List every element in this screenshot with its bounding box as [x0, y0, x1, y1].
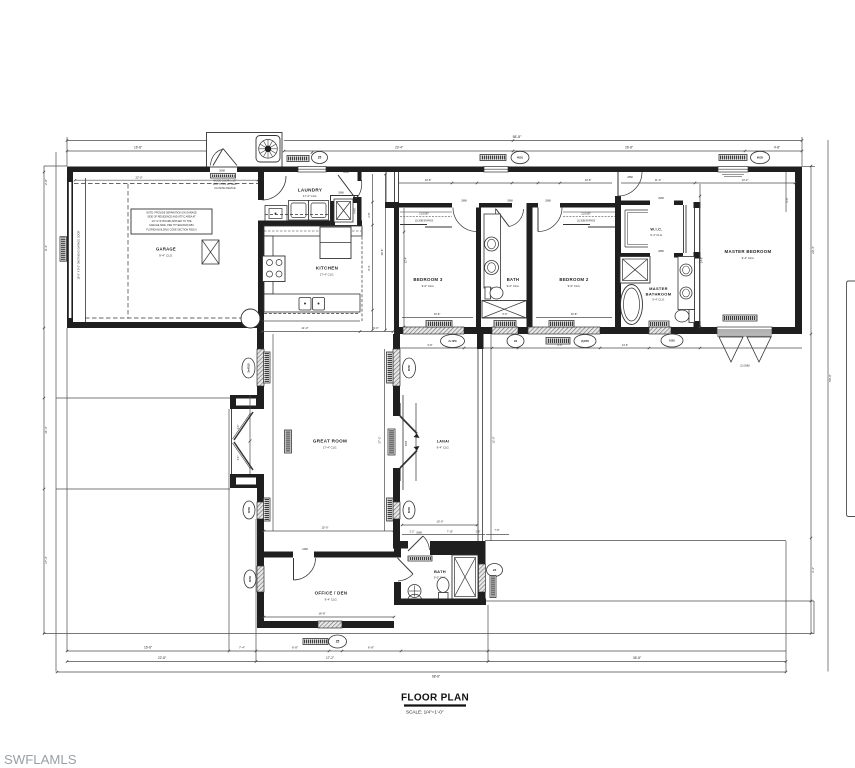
svg-text:CLOSET: CLOSET	[419, 213, 429, 216]
svg-text:36'-8": 36'-8"	[633, 656, 641, 660]
svg-text:3068: 3068	[219, 169, 225, 173]
svg-text:10'-8": 10'-8"	[585, 178, 592, 182]
svg-text:15'-0": 15'-0"	[321, 526, 328, 530]
svg-text:9'-8": 9'-8"	[558, 344, 563, 347]
svg-text:58'-8": 58'-8"	[513, 135, 522, 139]
svg-text:2'-8": 2'-8"	[44, 179, 48, 185]
svg-text:17'-2": 17'-2"	[326, 656, 334, 660]
svg-text:11'-0": 11'-0"	[655, 178, 661, 182]
svg-text:9'-8": 9'-8"	[785, 197, 789, 202]
svg-text:9'-4" CLG.: 9'-4" CLG.	[742, 256, 755, 260]
svg-text:8'-4": 8'-4"	[367, 265, 371, 270]
svg-text:(2) 2068 BYPASS: (2) 2068 BYPASS	[415, 220, 434, 223]
svg-text:BEDROOM 2: BEDROOM 2	[559, 277, 589, 282]
svg-text:16'-8": 16'-8"	[144, 646, 152, 650]
svg-text:12'-4": 12'-4"	[405, 257, 408, 263]
svg-text:9'-0" CLG.: 9'-0" CLG.	[568, 284, 581, 288]
svg-text:2068: 2068	[658, 197, 664, 200]
svg-text:13'-6": 13'-6"	[622, 344, 628, 347]
svg-text:LANAI: LANAI	[437, 440, 450, 444]
svg-text:FLOOR PLAN: FLOOR PLAN	[401, 693, 469, 704]
svg-text:16'-8": 16'-8"	[318, 612, 325, 616]
svg-text:1/2" GYP. BOARD APPLIED TO TH: 1/2" GYP. BOARD APPLIED TO THE	[151, 220, 191, 223]
svg-text:17'-4" CLG.: 17'-4" CLG.	[323, 446, 338, 450]
svg-text:16'-8": 16'-8"	[134, 146, 142, 150]
svg-text:2868: 2868	[658, 250, 664, 253]
svg-text:SCALE: 1/4"=1'-0": SCALE: 1/4"=1'-0"	[406, 710, 444, 715]
svg-text:22'-0": 22'-0"	[135, 176, 142, 180]
svg-text:26'-8": 26'-8"	[625, 146, 633, 150]
svg-text:2868: 2868	[545, 200, 551, 203]
svg-text:2668: 2668	[416, 532, 422, 535]
svg-text:GARAGE SIDE, PER 7TH ED(2020): GARAGE SIDE, PER 7TH ED(2020) FBC	[149, 224, 194, 227]
svg-text:2868: 2868	[627, 176, 633, 179]
svg-text:6050: 6050	[407, 506, 411, 513]
svg-text:11'-4": 11'-4"	[44, 426, 48, 433]
svg-text:BATH: BATH	[507, 277, 520, 282]
svg-text:2'-2": 2'-2"	[410, 531, 415, 534]
svg-text:CLOSET: CLOSET	[581, 213, 591, 216]
svg-text:7'-8": 7'-8"	[495, 529, 500, 532]
svg-text:GARAGE: GARAGE	[156, 247, 176, 252]
svg-text:6055: 6055	[757, 156, 764, 160]
svg-text:23: 23	[514, 339, 518, 343]
svg-text:BATHROOM: BATHROOM	[646, 291, 672, 296]
svg-text:AHU: AHU	[353, 208, 357, 214]
svg-text:14'-8": 14'-8"	[701, 257, 704, 263]
svg-text:10'-8": 10'-8"	[434, 312, 441, 316]
svg-text:2868: 2868	[338, 192, 344, 195]
svg-text:7'-10": 7'-10"	[447, 531, 453, 534]
svg-text:2868: 2868	[507, 200, 513, 203]
svg-text:MASTER BEDROOM: MASTER BEDROOM	[725, 249, 772, 254]
svg-text:2'-6": 2'-6"	[238, 456, 240, 461]
svg-text:11'-0": 11'-0"	[302, 326, 309, 330]
svg-text:16'-0" X 8'-0" OVERHEAD GARAGE: 16'-0" X 8'-0" OVERHEAD GARAGE DOOR	[78, 230, 81, 279]
svg-text:9'-4" CLG.: 9'-4" CLG.	[437, 446, 450, 450]
svg-text:22'-8": 22'-8"	[158, 656, 166, 660]
svg-text:17'-4" CLG.: 17'-4" CLG.	[320, 273, 335, 277]
svg-text:10'-8": 10'-8"	[571, 312, 578, 316]
svg-text:12'-0": 12'-0"	[492, 437, 496, 444]
svg-text:15'-0": 15'-0"	[436, 520, 443, 524]
svg-text:2868: 2868	[343, 171, 349, 174]
svg-text:10'-8": 10'-8"	[425, 178, 432, 182]
svg-text:H35: H35	[669, 339, 675, 343]
svg-text:3050: 3050	[247, 506, 251, 513]
svg-text:9'-4" CLG.: 9'-4" CLG.	[652, 298, 665, 302]
svg-text:2x 4050: 2x 4050	[448, 340, 457, 343]
svg-text:17'-4": 17'-4"	[44, 556, 48, 564]
svg-text:23'-4": 23'-4"	[395, 146, 403, 150]
svg-text:5'-0": 5'-0"	[373, 326, 379, 330]
svg-text:9'-4" CLG.: 9'-4" CLG.	[650, 233, 663, 237]
svg-text:6068: 6068	[406, 440, 408, 446]
svg-text:27'-2": 27'-2"	[378, 437, 382, 444]
svg-text:9'-0" CLG.: 9'-0" CLG.	[422, 284, 435, 288]
svg-text:9'-4" CLG.: 9'-4" CLG.	[159, 254, 173, 258]
svg-text:17'-4" CLG.: 17'-4" CLG.	[303, 194, 318, 198]
svg-text:BATH: BATH	[434, 569, 446, 574]
svg-text:4010: 4010	[517, 156, 524, 160]
svg-text:25: 25	[336, 640, 340, 644]
svg-text:2'-8": 2'-8"	[367, 212, 371, 217]
svg-text:50'-0": 50'-0"	[828, 374, 832, 382]
svg-text:SWFLAMLS: SWFLAMLS	[4, 752, 77, 767]
svg-text:9'-0" CLG.: 9'-0" CLG.	[507, 284, 520, 288]
svg-text:CLOSING DEVICE: CLOSING DEVICE	[214, 187, 236, 190]
svg-text:3'-4": 3'-4"	[811, 567, 815, 573]
svg-text:2468: 2468	[302, 548, 308, 551]
svg-text:FLORIDA BUILDING CODE SECTION: FLORIDA BUILDING CODE SECTION R302.6	[146, 228, 197, 231]
svg-text:KITCHEN: KITCHEN	[316, 266, 339, 271]
svg-text:68'-8": 68'-8"	[432, 675, 440, 679]
svg-text:6'-8": 6'-8"	[292, 646, 298, 650]
svg-text:9050: 9050	[407, 364, 411, 371]
svg-text:5'-0": 5'-0"	[502, 312, 507, 316]
svg-text:OFFICE / DEN: OFFICE / DEN	[315, 591, 348, 596]
svg-text:7'-4": 7'-4"	[239, 646, 245, 650]
svg-text:2'-8": 2'-8"	[476, 531, 481, 534]
svg-text:2'-6": 2'-6"	[238, 425, 240, 430]
svg-text:LAUNDRY: LAUNDRY	[298, 188, 322, 193]
svg-text:25: 25	[318, 156, 322, 160]
svg-text:13'-0": 13'-0"	[742, 178, 749, 182]
svg-text:(2) 2668: (2) 2668	[740, 365, 750, 368]
svg-text:2x4010: 2x4010	[247, 363, 251, 373]
svg-text:9'-4": 9'-4"	[44, 245, 48, 251]
svg-text:9'-8": 9'-8"	[428, 344, 433, 347]
svg-text:MASTER: MASTER	[649, 286, 668, 291]
svg-text:NOTE: PROVIDE SEPARATION ON GA: NOTE: PROVIDE SEPARATION ON GARAGE	[146, 212, 197, 215]
svg-text:SIDE OF RESIDENCE AND ATTIC A: SIDE OF RESIDENCE AND ATTIC AREA AT	[147, 216, 196, 219]
svg-text:9'-4" CLG.: 9'-4" CLG.	[325, 598, 338, 602]
svg-text:BEDROOM 3: BEDROOM 3	[413, 277, 443, 282]
svg-text:(2) 2068 BYPASS: (2) 2068 BYPASS	[577, 220, 596, 223]
svg-text:6'-8": 6'-8"	[368, 646, 374, 650]
svg-text:(2)4050: (2)4050	[581, 340, 590, 343]
svg-text:GREAT ROOM: GREAT ROOM	[313, 439, 347, 444]
svg-text:36'-8": 36'-8"	[380, 249, 384, 256]
svg-text:29'-4": 29'-4"	[811, 246, 815, 254]
svg-text:3050: 3050	[248, 575, 252, 582]
svg-text:23: 23	[493, 568, 497, 572]
svg-text:W.I.C.: W.I.C.	[650, 228, 662, 232]
svg-text:2868: 2868	[461, 200, 467, 203]
svg-text:4'-8": 4'-8"	[774, 146, 780, 150]
